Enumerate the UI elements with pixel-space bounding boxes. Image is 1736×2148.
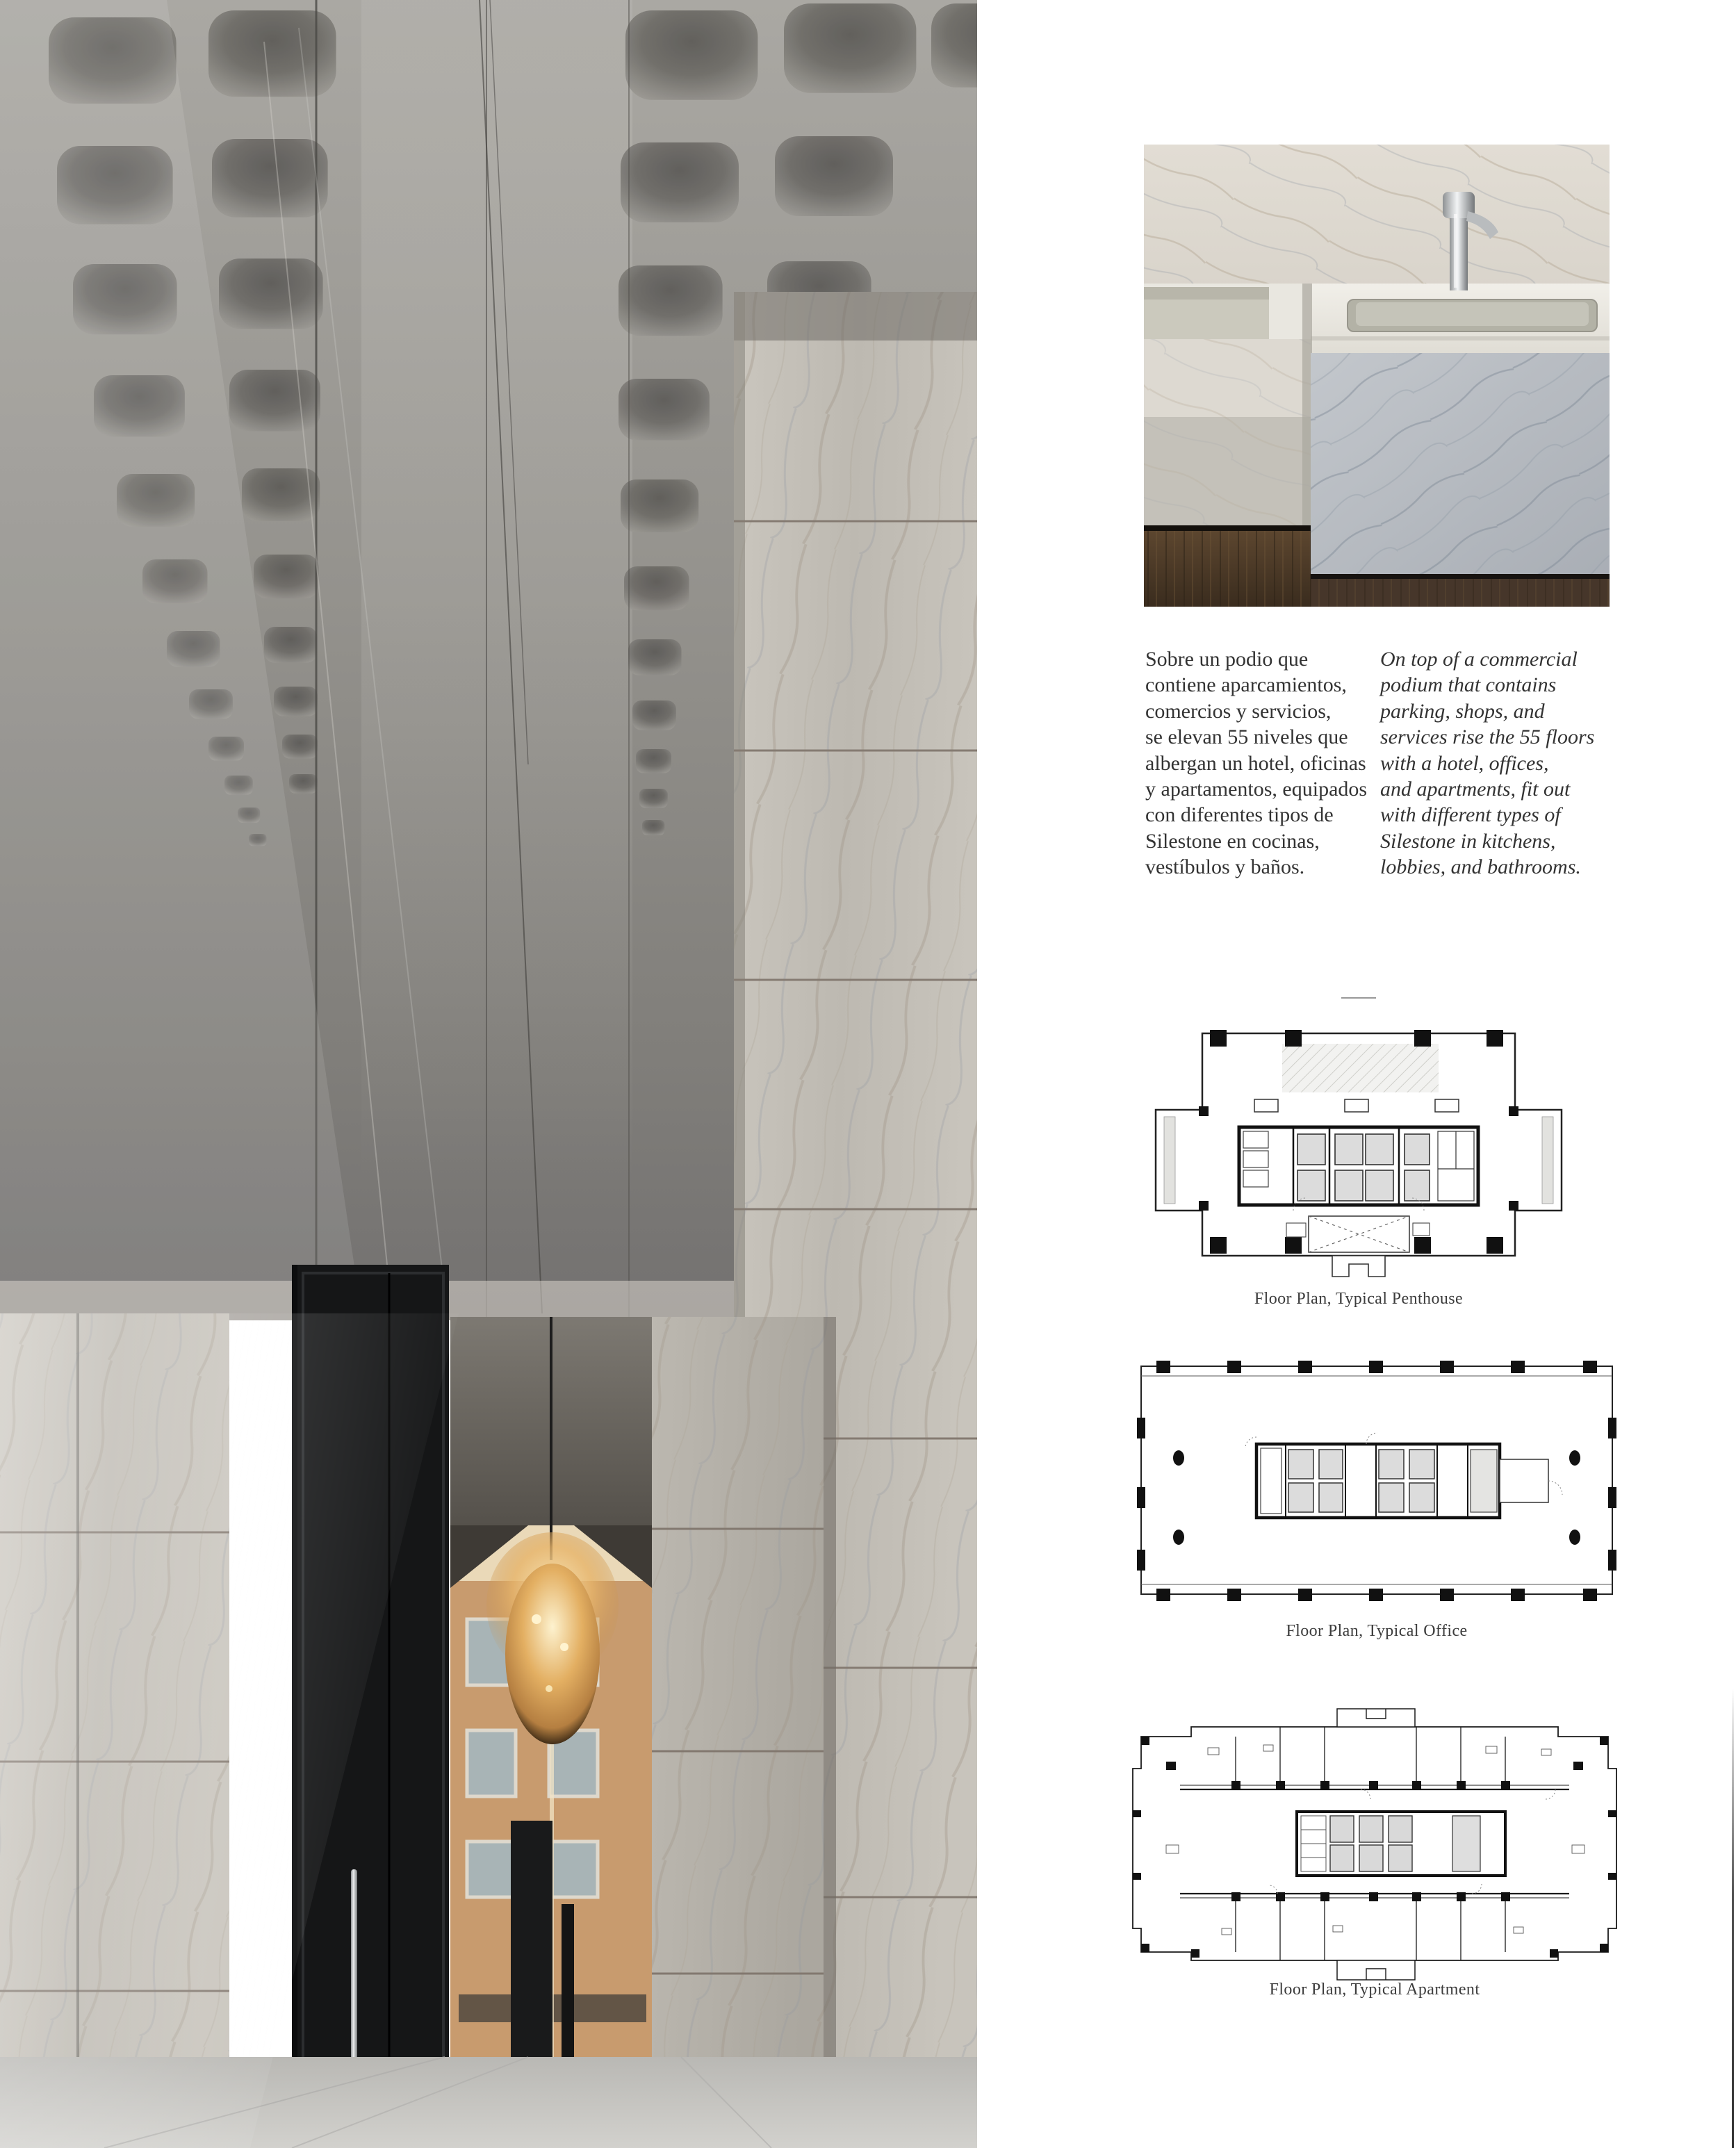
- paragraph-spanish: Sobre un podio que contiene aparcamiento…: [1145, 646, 1379, 880]
- marble-pier-middle: [650, 1317, 836, 2148]
- text-line: services rise the 55 floors: [1380, 724, 1619, 750]
- plan-caption-office: Floor Plan, Typical Office: [1137, 1622, 1616, 1641]
- text-line: con diferentes tipos de: [1145, 802, 1379, 828]
- text-line: se elevan 55 niveles que: [1145, 724, 1379, 750]
- floor-plan-apartment: [1124, 1706, 1625, 1983]
- text-line: Silestone en cocinas,: [1145, 828, 1379, 854]
- paragraph-english: On top of a commercial podium that conta…: [1380, 646, 1619, 880]
- text-line: comercios y servicios,: [1145, 698, 1379, 724]
- text-line: y apartamentos, equipados: [1145, 776, 1379, 802]
- floor-plan-office: [1137, 1355, 1616, 1614]
- text-line: Sobre un podio que: [1145, 646, 1379, 672]
- text-line: vestíbulos y baños.: [1145, 854, 1379, 880]
- page-edge-shadow: [1732, 1689, 1734, 2148]
- text-line: On top of a commercial: [1380, 646, 1619, 672]
- plan-caption-apartment: Floor Plan, Typical Apartment: [1124, 1981, 1625, 1999]
- plan-caption-penthouse: Floor Plan, Typical Penthouse: [1150, 1290, 1567, 1309]
- text-line: albergan un hotel, oficinas: [1145, 751, 1379, 776]
- corridor-photo: [0, 0, 977, 2148]
- text-line: Silestone in kitchens,: [1380, 828, 1619, 854]
- text-line: podium that contains: [1380, 672, 1619, 698]
- bathroom-photo-art: [1144, 145, 1610, 607]
- chandelier: [505, 1564, 600, 1744]
- book-page: Sobre un podio que contiene aparcamiento…: [0, 0, 1736, 2148]
- trough-sink-block: [1144, 284, 1312, 525]
- floor-plan-penthouse: [1150, 995, 1567, 1287]
- text-line: with a hotel, offices,: [1380, 751, 1619, 776]
- door-handle: [351, 1869, 357, 2071]
- bathroom-sink-photo: [1144, 145, 1610, 607]
- text-line: parking, shops, and: [1380, 698, 1619, 724]
- text-line: contiene aparcamientos,: [1145, 672, 1379, 698]
- text-line: lobbies, and bathrooms.: [1380, 854, 1619, 880]
- text-line: and apartments, fit out: [1380, 776, 1619, 802]
- corridor-photo-art: [0, 0, 977, 2148]
- text-line: with different types of: [1380, 802, 1619, 828]
